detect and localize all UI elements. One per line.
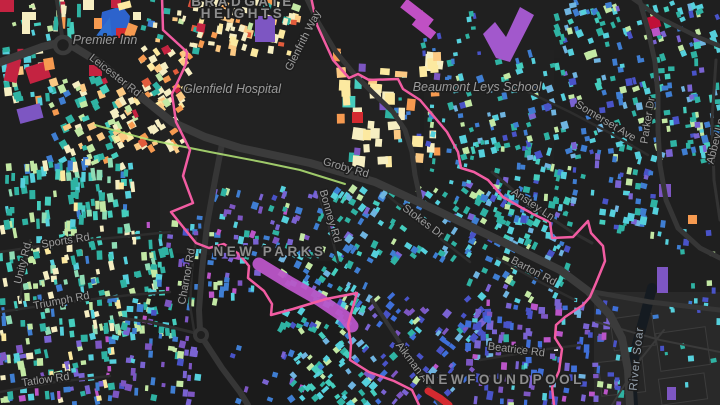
building <box>616 401 621 405</box>
building <box>475 309 481 315</box>
building <box>44 336 52 343</box>
building <box>158 262 162 268</box>
building <box>120 380 126 387</box>
building <box>677 245 681 250</box>
building <box>432 158 436 164</box>
building <box>712 287 716 293</box>
building <box>29 190 35 199</box>
building <box>715 99 720 104</box>
building <box>542 393 547 401</box>
building <box>472 318 478 323</box>
building <box>526 328 531 334</box>
building <box>607 384 612 389</box>
orange-building <box>94 18 102 29</box>
building <box>82 212 85 219</box>
cream-building <box>22 12 36 20</box>
building <box>593 395 598 402</box>
building <box>91 199 95 206</box>
building <box>694 298 698 303</box>
building <box>124 169 129 177</box>
red-building <box>352 112 363 123</box>
building <box>60 327 64 336</box>
building <box>39 323 46 332</box>
building <box>26 352 34 359</box>
orange-building <box>43 57 55 71</box>
building <box>599 220 605 225</box>
building <box>208 281 212 286</box>
map-viewport[interactable]: BRADGATEHEIGHTSPremier InnLeicester RdGl… <box>0 0 720 405</box>
building <box>462 181 467 187</box>
building <box>430 122 434 128</box>
building <box>170 386 175 394</box>
orange-building <box>688 215 697 224</box>
building <box>650 194 656 199</box>
building <box>150 264 157 270</box>
building <box>171 329 176 337</box>
building <box>128 163 133 170</box>
building <box>470 156 474 161</box>
building <box>103 325 108 334</box>
building <box>517 324 522 329</box>
building <box>506 303 512 309</box>
building <box>0 375 6 380</box>
building <box>72 401 77 405</box>
building <box>524 400 528 405</box>
building <box>117 227 122 233</box>
building <box>115 164 120 172</box>
building <box>67 160 72 170</box>
building <box>628 193 633 199</box>
building <box>573 167 577 173</box>
building <box>11 173 15 181</box>
building <box>29 4 35 8</box>
building <box>172 336 178 342</box>
building <box>37 358 44 366</box>
building <box>515 361 519 369</box>
building <box>555 302 562 310</box>
building <box>584 344 590 353</box>
building <box>618 98 623 105</box>
building <box>559 204 563 210</box>
building <box>538 307 545 314</box>
building <box>148 350 153 357</box>
building <box>1 333 6 341</box>
building <box>234 235 239 240</box>
building <box>145 343 152 350</box>
building <box>486 300 490 306</box>
building <box>527 155 534 161</box>
building <box>60 170 65 181</box>
building <box>20 178 25 188</box>
building <box>10 207 15 213</box>
building <box>473 142 476 146</box>
building <box>0 298 6 305</box>
building <box>475 122 480 127</box>
building <box>6 163 12 171</box>
building <box>217 281 222 286</box>
cream-building <box>22 20 30 34</box>
building <box>465 320 472 328</box>
building <box>567 166 571 171</box>
building <box>658 68 665 73</box>
building <box>627 213 635 222</box>
building <box>380 68 390 75</box>
building <box>556 331 563 337</box>
building <box>157 280 162 287</box>
building <box>591 190 595 196</box>
building <box>446 148 451 153</box>
building <box>620 63 625 68</box>
building <box>337 114 345 124</box>
building <box>694 58 698 66</box>
building <box>95 340 102 349</box>
building <box>394 130 401 140</box>
building <box>148 240 152 250</box>
building <box>184 349 189 356</box>
building <box>341 87 350 96</box>
building <box>480 332 486 341</box>
building <box>89 302 93 310</box>
building <box>213 282 217 290</box>
building <box>16 345 24 354</box>
building <box>377 156 388 164</box>
building <box>484 316 490 323</box>
building <box>209 232 214 236</box>
building <box>520 164 525 169</box>
building <box>71 368 76 373</box>
building <box>24 293 30 301</box>
building <box>161 383 165 387</box>
building <box>430 104 434 108</box>
building <box>423 38 427 42</box>
building <box>97 250 103 260</box>
building <box>131 368 136 376</box>
building <box>45 219 50 227</box>
building <box>100 225 104 231</box>
building <box>706 230 712 236</box>
building <box>145 385 149 391</box>
building <box>588 332 593 338</box>
building <box>415 153 424 163</box>
building <box>244 230 250 237</box>
building <box>45 391 50 400</box>
building <box>626 178 633 185</box>
building <box>615 180 622 188</box>
building <box>569 78 577 86</box>
building <box>290 19 296 25</box>
building <box>434 147 440 155</box>
building <box>501 362 507 370</box>
building <box>107 210 113 218</box>
building <box>22 218 29 225</box>
building <box>602 332 607 339</box>
building <box>486 334 489 338</box>
building <box>112 242 118 249</box>
cream-building <box>133 12 141 20</box>
building <box>161 362 165 367</box>
building <box>1 316 6 326</box>
building <box>126 358 131 364</box>
building <box>134 271 140 277</box>
building <box>108 395 112 401</box>
building <box>55 169 60 180</box>
building <box>20 320 25 327</box>
building <box>544 194 548 201</box>
building <box>544 337 551 342</box>
building <box>680 249 685 255</box>
building <box>197 215 203 220</box>
building <box>363 144 370 153</box>
building <box>685 382 689 388</box>
building <box>96 395 102 401</box>
building <box>689 94 694 99</box>
building <box>584 136 590 142</box>
building <box>551 109 557 115</box>
building <box>702 297 708 302</box>
label-glenfield-hospital: Glenfield Hospital <box>183 82 282 96</box>
building <box>7 355 11 364</box>
label-beaumont-leys-school: Beaumont Leys School <box>413 80 543 94</box>
building <box>194 231 199 235</box>
building <box>166 287 170 291</box>
building <box>530 303 538 310</box>
building <box>132 328 137 334</box>
building <box>166 242 171 248</box>
building <box>517 163 521 170</box>
building <box>28 394 35 401</box>
purple-building <box>667 387 676 400</box>
building <box>99 201 106 212</box>
building <box>107 366 111 371</box>
building <box>76 340 82 347</box>
building <box>497 316 502 323</box>
building <box>663 110 670 116</box>
building <box>597 149 601 154</box>
building <box>660 220 666 228</box>
building <box>81 335 88 342</box>
building <box>63 387 70 393</box>
building <box>7 391 13 400</box>
building <box>163 8 170 15</box>
building <box>412 136 424 148</box>
building <box>484 140 489 145</box>
building <box>471 26 476 30</box>
building <box>665 239 669 245</box>
building <box>660 346 664 351</box>
building <box>354 148 361 156</box>
building <box>652 314 658 319</box>
building <box>209 291 214 297</box>
building <box>37 201 41 210</box>
building <box>126 306 133 312</box>
building <box>109 359 116 364</box>
building <box>189 349 197 357</box>
building <box>650 232 654 239</box>
building <box>608 148 614 154</box>
building <box>699 67 705 73</box>
building <box>95 201 99 210</box>
building <box>533 174 540 181</box>
building <box>19 395 26 402</box>
building <box>141 252 147 261</box>
building <box>177 10 182 16</box>
building <box>158 326 164 333</box>
building <box>691 283 695 289</box>
building <box>172 17 178 21</box>
building <box>25 164 29 172</box>
building <box>432 48 436 52</box>
building <box>639 216 647 225</box>
building <box>464 163 468 167</box>
building <box>159 333 163 338</box>
building <box>47 25 53 32</box>
building <box>119 182 124 189</box>
building <box>595 160 600 168</box>
building <box>75 190 79 199</box>
building <box>107 176 110 183</box>
building <box>442 118 445 122</box>
building <box>716 318 720 325</box>
building <box>564 363 570 372</box>
building <box>36 219 40 229</box>
building <box>466 359 473 366</box>
building <box>524 363 528 369</box>
building <box>477 51 481 55</box>
building <box>118 330 122 336</box>
building <box>99 192 105 201</box>
building <box>150 394 157 401</box>
building <box>687 140 693 145</box>
building <box>37 170 42 180</box>
building <box>500 398 504 404</box>
building <box>176 381 183 388</box>
building <box>74 202 78 211</box>
building <box>683 107 687 114</box>
building <box>635 208 641 216</box>
building <box>419 66 427 77</box>
building <box>165 328 170 336</box>
building <box>88 354 94 360</box>
building <box>109 323 114 331</box>
building <box>112 390 119 398</box>
building <box>618 225 625 231</box>
building <box>69 330 74 337</box>
building <box>52 268 59 275</box>
building <box>196 23 206 33</box>
building <box>59 318 62 325</box>
building <box>208 41 215 46</box>
building <box>220 286 226 291</box>
building <box>167 234 173 239</box>
building <box>573 179 577 184</box>
label-premier-inn: Premier Inn <box>73 33 138 47</box>
building <box>77 4 81 17</box>
building <box>238 215 243 220</box>
building <box>4 87 13 97</box>
building <box>648 171 653 176</box>
building <box>669 120 673 126</box>
building <box>665 74 671 80</box>
building <box>35 388 39 396</box>
building <box>30 92 34 97</box>
building <box>606 101 614 108</box>
label-newfoundpool: NEWFOUNDPOOL <box>425 372 585 387</box>
building <box>96 170 102 181</box>
building <box>185 316 189 322</box>
building <box>147 222 150 228</box>
building <box>666 149 673 157</box>
building <box>5 175 9 184</box>
building <box>33 251 40 259</box>
building <box>0 397 6 403</box>
building <box>230 48 236 56</box>
building <box>662 118 668 123</box>
building <box>136 304 143 312</box>
map-canvas[interactable]: BRADGATEHEIGHTSPremier InnLeicester RdGl… <box>0 0 720 405</box>
building <box>666 126 670 132</box>
building <box>140 362 145 369</box>
building <box>168 346 175 351</box>
building <box>662 85 669 90</box>
building <box>688 355 694 361</box>
building <box>62 6 67 15</box>
building <box>594 58 601 63</box>
building <box>466 16 471 22</box>
building <box>692 70 697 75</box>
building <box>101 351 108 359</box>
building <box>500 112 506 118</box>
building <box>513 305 518 310</box>
building <box>359 64 366 72</box>
building <box>187 375 191 381</box>
building <box>492 329 497 334</box>
building <box>469 11 474 17</box>
building <box>125 191 132 199</box>
building <box>238 280 243 285</box>
building <box>363 129 371 140</box>
building <box>433 52 441 61</box>
building <box>185 336 189 341</box>
building <box>474 340 481 349</box>
building <box>695 122 701 128</box>
building <box>188 391 195 397</box>
label-new-parks: NEW PARKS <box>213 244 326 259</box>
building <box>125 210 129 216</box>
building <box>668 66 674 71</box>
building <box>93 211 98 220</box>
building <box>81 360 87 365</box>
building <box>189 363 192 370</box>
building <box>149 252 154 258</box>
building <box>267 46 274 54</box>
building <box>198 223 201 228</box>
building <box>367 121 374 129</box>
building <box>453 52 458 56</box>
building <box>504 204 510 210</box>
building <box>395 71 408 78</box>
building <box>610 76 616 82</box>
building <box>560 171 567 179</box>
building <box>231 293 235 301</box>
building <box>687 84 692 91</box>
dark-red-building <box>0 0 14 12</box>
building <box>33 283 38 289</box>
building <box>427 117 432 122</box>
building <box>66 172 72 181</box>
building <box>251 285 255 291</box>
building <box>183 371 187 378</box>
building <box>498 386 503 393</box>
